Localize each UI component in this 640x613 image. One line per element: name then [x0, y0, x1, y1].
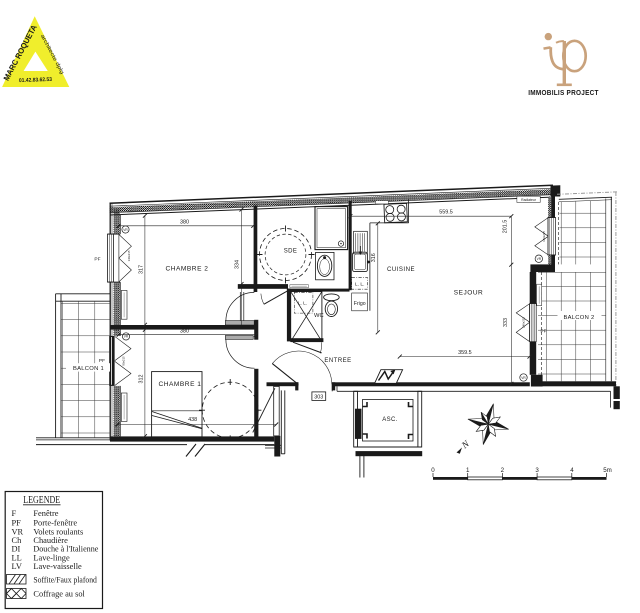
svg-text:312: 312 [138, 375, 144, 384]
svg-text:VR: VR [521, 376, 526, 380]
svg-text:LV: LV [12, 562, 22, 571]
svg-text:333: 333 [503, 318, 509, 327]
svg-text:Lave-vaisselle: Lave-vaisselle [33, 562, 82, 571]
svg-text:BALCON 1: BALCON 1 [73, 366, 104, 372]
svg-text:2: 2 [501, 467, 505, 474]
svg-text:334: 334 [235, 260, 241, 269]
svg-text:317: 317 [138, 265, 144, 274]
svg-text:SDE: SDE [284, 248, 298, 254]
svg-text:201.5: 201.5 [503, 220, 509, 234]
svg-text:DI: DI [12, 545, 21, 554]
svg-text:303: 303 [314, 394, 323, 400]
svg-text:VR: VR [123, 228, 128, 232]
svg-text:3: 3 [535, 467, 539, 474]
svg-text:L. L.: L. L. [355, 282, 365, 288]
svg-text:Lave-linge: Lave-linge [33, 553, 70, 562]
svg-text:559.5: 559.5 [439, 210, 453, 216]
svg-text:0: 0 [431, 467, 435, 474]
svg-text:CHAMBRE 1: CHAMBRE 1 [159, 381, 202, 388]
svg-text:ASC.: ASC. [382, 417, 398, 423]
svg-text:LEGENDE: LEGENDE [23, 495, 60, 506]
svg-text:IMMOBILIS PROJECT: IMMOBILIS PROJECT [528, 88, 599, 97]
svg-text:Porte-fenêtre: Porte-fenêtre [33, 519, 77, 528]
svg-text:VR: VR [537, 257, 542, 261]
svg-text:438: 438 [188, 417, 197, 423]
svg-text:F: F [12, 509, 17, 518]
svg-text:L. L.: L. L. [298, 301, 307, 306]
svg-text:Frigo: Frigo [354, 301, 366, 307]
svg-text:ENTREE: ENTREE [324, 358, 351, 364]
svg-text:380: 380 [180, 219, 189, 225]
svg-text:LL: LL [12, 553, 22, 562]
svg-text:SEJOUR: SEJOUR [454, 289, 484, 296]
svg-text:BALCON 2: BALCON 2 [563, 315, 594, 321]
svg-text:1: 1 [466, 467, 470, 474]
svg-text:CUISINE: CUISINE [387, 266, 415, 273]
svg-text:5m: 5m [603, 467, 612, 474]
svg-text:Soffite/Faux plafond: Soffite/Faux plafond [33, 576, 97, 585]
svg-text:140x215: 140x215 [127, 250, 131, 261]
svg-text:PF: PF [94, 257, 100, 263]
svg-text:01.42.83.62.53: 01.42.83.62.53 [19, 77, 52, 84]
svg-text:VR: VR [124, 335, 129, 339]
svg-text:4: 4 [570, 467, 574, 474]
svg-text:Coffrage au sol: Coffrage au sol [33, 590, 85, 599]
svg-text:Fenêtre: Fenêtre [33, 509, 58, 518]
svg-text:Radiateur: Radiateur [521, 198, 537, 202]
svg-text:Douche à l'Italienne: Douche à l'Italienne [33, 545, 98, 554]
svg-text:240x215: 240x215 [522, 317, 526, 328]
svg-text:380: 380 [180, 329, 189, 335]
svg-text:PF: PF [99, 358, 105, 364]
svg-text:90x215: 90x215 [122, 356, 126, 366]
svg-text:359.5: 359.5 [458, 350, 472, 356]
svg-text:PF: PF [12, 519, 22, 528]
svg-text:316: 316 [371, 253, 377, 262]
svg-text:WC: WC [314, 313, 324, 319]
svg-text:140x215: 140x215 [542, 231, 546, 242]
svg-text:CHAMBRE 2: CHAMBRE 2 [166, 266, 209, 273]
